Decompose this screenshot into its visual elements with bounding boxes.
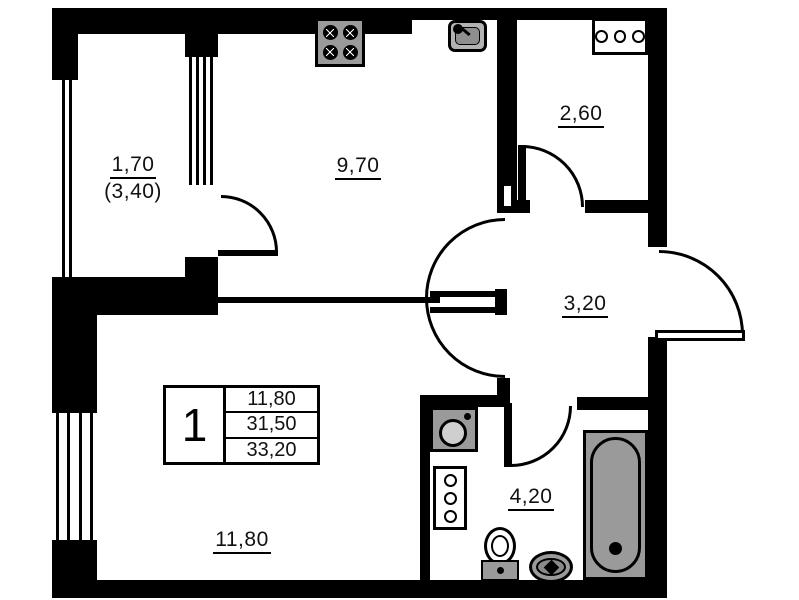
balcony-window-line [196,57,199,185]
bathroom-area-value: 4,20 [508,485,555,511]
living-area-label: 11,80 [187,528,297,552]
balcony-glazing-line [69,80,72,277]
hallway-area-label: 3,20 [530,292,640,316]
wall-balcony-top-stub [185,33,218,57]
living-window-line [90,413,93,540]
kitchen-area-label: 9,70 [303,154,413,178]
washer-knob [464,413,471,420]
balcony-door-leaf [218,250,278,256]
living-window-line [67,413,70,540]
grille-hole [444,510,457,523]
wall-right-upper [648,8,667,247]
grille-hole [444,492,457,505]
stamp-total-area: 31,50 [226,413,317,438]
wall-bathroom-step [497,378,510,395]
grille-hole [614,30,627,43]
wall-balcony-bottom-stub [185,257,218,315]
stove-burner-icon [323,45,338,60]
stove-icon [315,18,365,67]
closet-door-leaf [518,145,526,208]
wall-left-bottom [52,540,97,598]
wall-bathroom-top-right [577,397,648,410]
balcony-window-line [189,57,192,185]
living-window-line [56,413,59,540]
bathtub-drain [609,542,622,555]
bathroom-area-label: 4,20 [476,485,586,509]
wall-bathroom-left [420,395,430,583]
round-sink-icon [529,551,573,583]
bathroom-door-leaf [504,403,512,467]
bathtub-icon [583,430,648,580]
balcony-window-line [210,57,213,185]
floor-plan: 1,70 (3,40) 9,70 2,60 3,20 4,20 11,80 1 … [0,0,799,600]
stamp-total-area-with-balcony: 33,20 [226,439,317,462]
stove-burner-icon [343,25,358,40]
vent-grille-icon [592,18,648,55]
toilet-bowl-inner [491,535,509,557]
washing-machine-icon [430,407,478,452]
sink-icon [448,20,487,52]
living-area-value: 11,80 [213,528,271,554]
stamp-rooms-count: 1 [166,388,226,462]
grille-hole [444,474,457,487]
wall-closet-bottom [585,200,648,213]
balcony-coefficient-value: (3,40) [104,180,162,203]
balcony-coefficient-label: (3,40) [78,180,188,204]
entrance-door-leaf-core [658,333,742,338]
wall-partition-thick [78,277,185,315]
balcony-area-value: 1,70 [110,153,157,179]
stove-burner-icon [343,45,358,60]
balcony-window-line [203,57,206,185]
grille-hole [595,30,608,43]
area-stamp-table: 1 11,80 31,50 33,20 [163,385,320,465]
wall-kitchen-closet [497,20,517,213]
towel-rail-icon [433,466,467,530]
partition-thin-line [218,297,440,303]
closet-area-value: 2,60 [558,102,605,128]
entrance-door-leaf [655,330,745,341]
toilet-flush-dot [497,567,504,574]
stamp-rows: 11,80 31,50 33,20 [226,388,317,462]
grille-hole [632,30,645,43]
balcony-glazing-line [62,80,65,277]
balcony-area-label: 1,70 [78,153,188,177]
toilet-tank [481,560,519,581]
closet-area-label: 2,60 [526,102,636,126]
washer-drum [439,419,467,447]
wall-notch [504,186,511,206]
stamp-living-area: 11,80 [226,388,317,413]
living-window-line [79,413,82,540]
kitchen-area-value: 9,70 [335,154,382,180]
wall-bathroom-top-left [420,395,510,407]
wall-right-lower [648,337,667,598]
wall-bottom [52,580,667,598]
hallway-area-value: 3,20 [562,292,609,318]
stove-burner-icon [323,25,338,40]
